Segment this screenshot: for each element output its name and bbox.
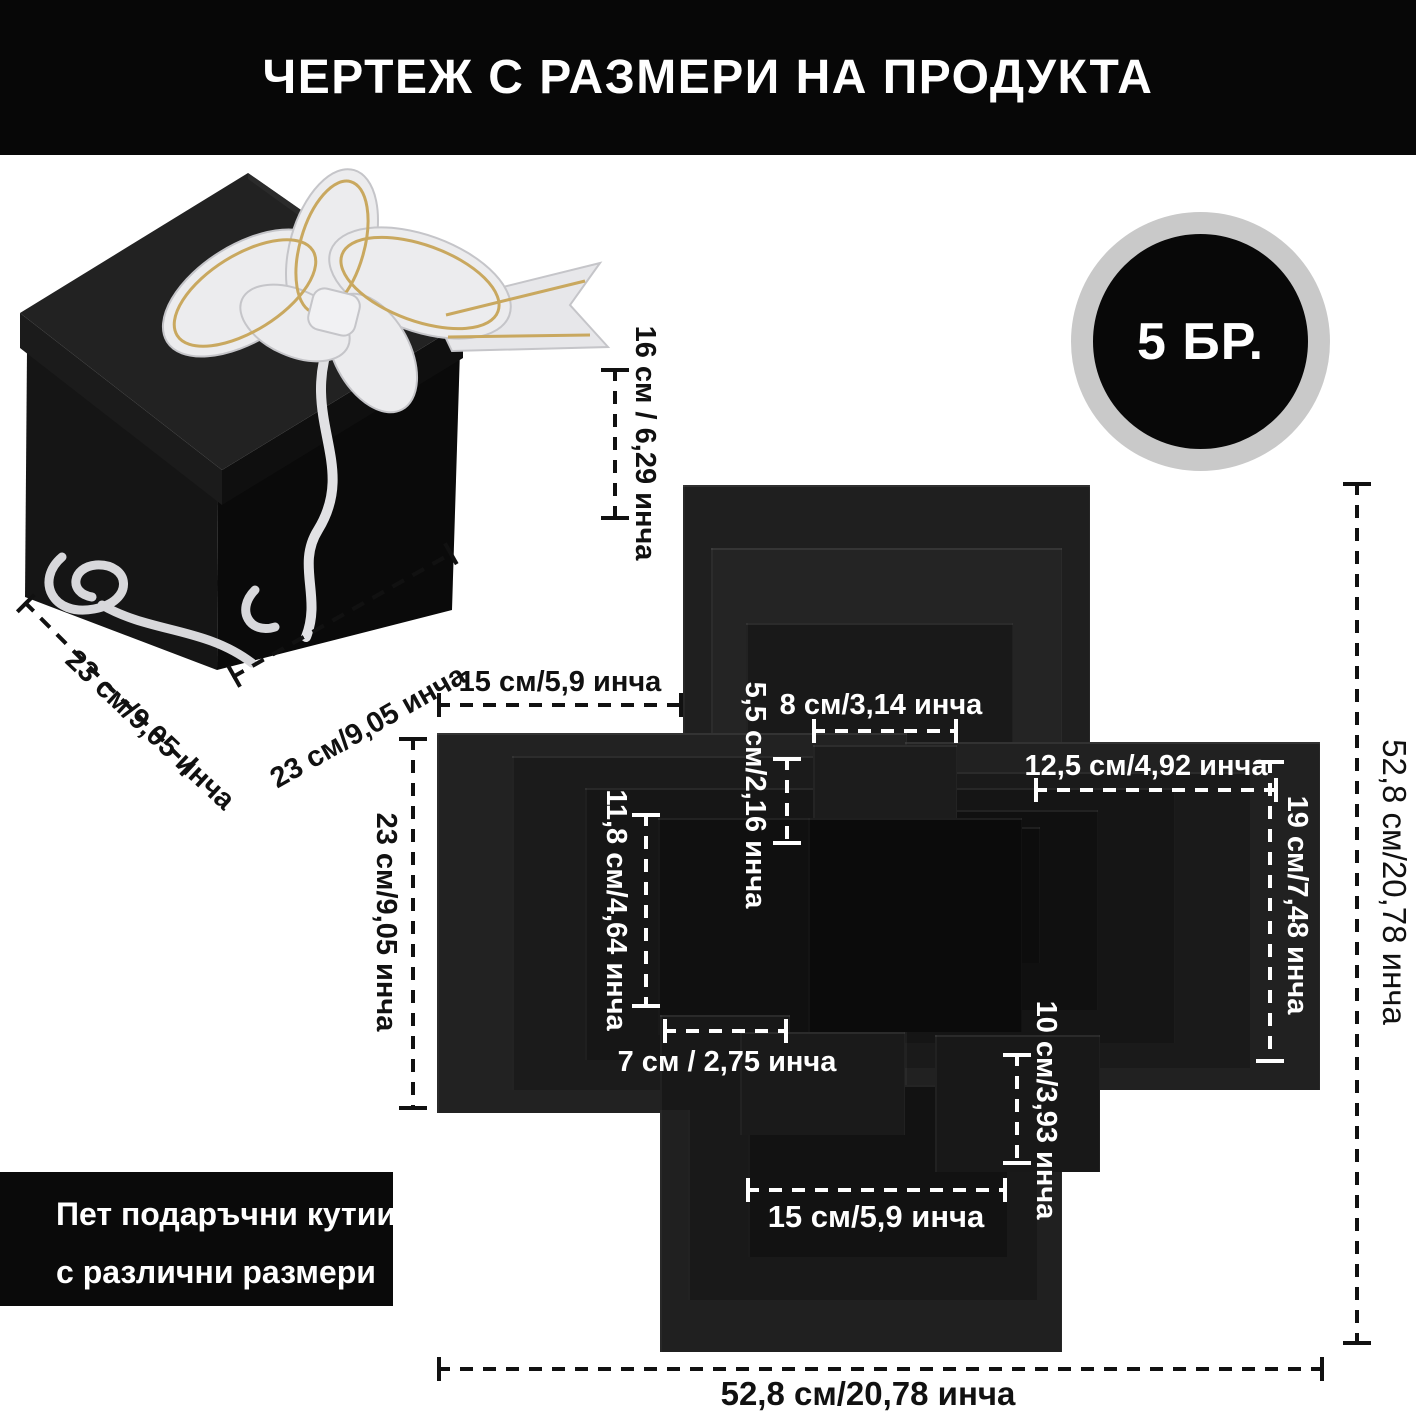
photo-height-label: 16 см / 6,29 инча [630,323,660,563]
total-height-line [1355,482,1359,1345]
left-tab-width-line [663,1029,788,1033]
note-box: Пет подаръчни кутии с различни размери [0,1172,393,1306]
total-height-label: 52,8 см/20,78 инча [1377,672,1411,1092]
right-panel-width-line [1034,788,1278,792]
top-tab-width-line [812,729,958,733]
product-dimension-infographic: ЧЕРТЕЖ С РАЗМЕРИ НА ПРОДУКТА [0,0,1416,1411]
bottom-inner-width-label: 15 см/5,9 инча [736,1202,1016,1234]
photo-height-line [613,368,617,520]
note-line-1: Пет подаръчни кутии [56,1196,396,1233]
right-panel-width-label: 12,5 см/4,92 инча [986,751,1306,781]
top-tab-height-label: 5,5 см/2,16 инча [742,670,770,920]
diagram-center-box [808,818,1022,1032]
top-flap-width-label: 15 см/5,9 инча [440,667,680,697]
top-tab-width-label: 8 см/3,14 инча [761,690,1001,720]
left-inner-height-line [644,813,648,1008]
gift-box-photo [0,165,660,725]
quantity-badge: 5 БР. [1071,212,1330,471]
bottom-tab-height-line [1015,1053,1019,1165]
right-panel-height-label: 19 см/7,48 инча [1282,775,1312,1035]
quantity-badge-label: 5 БР. [1137,312,1264,372]
left-flap-height-label: 23 см/9,05 инча [371,782,401,1062]
top-tab-height-line [785,757,789,845]
left-inner-height-label: 11,8 см/4,64 инча [601,775,631,1045]
page-title: ЧЕРТЕЖ С РАЗМЕРИ НА ПРОДУКТА [263,50,1154,105]
right-panel-height-line [1268,760,1272,1063]
left-flap-height-line [411,737,415,1110]
bottom-tab-height-label: 10 см/3,93 инча [1031,990,1061,1230]
left-tab-width-label: 7 см / 2,75 инча [597,1047,857,1077]
bottom-inner-width-line [746,1188,1007,1192]
total-width-line [437,1367,1324,1371]
header-bar: ЧЕРТЕЖ С РАЗМЕРИ НА ПРОДУКТА [0,0,1416,155]
total-width-label: 52,8 см/20,78 инча [618,1377,1118,1411]
top-flap-width-line [437,703,683,707]
note-line-2: с различни размери [56,1254,376,1291]
